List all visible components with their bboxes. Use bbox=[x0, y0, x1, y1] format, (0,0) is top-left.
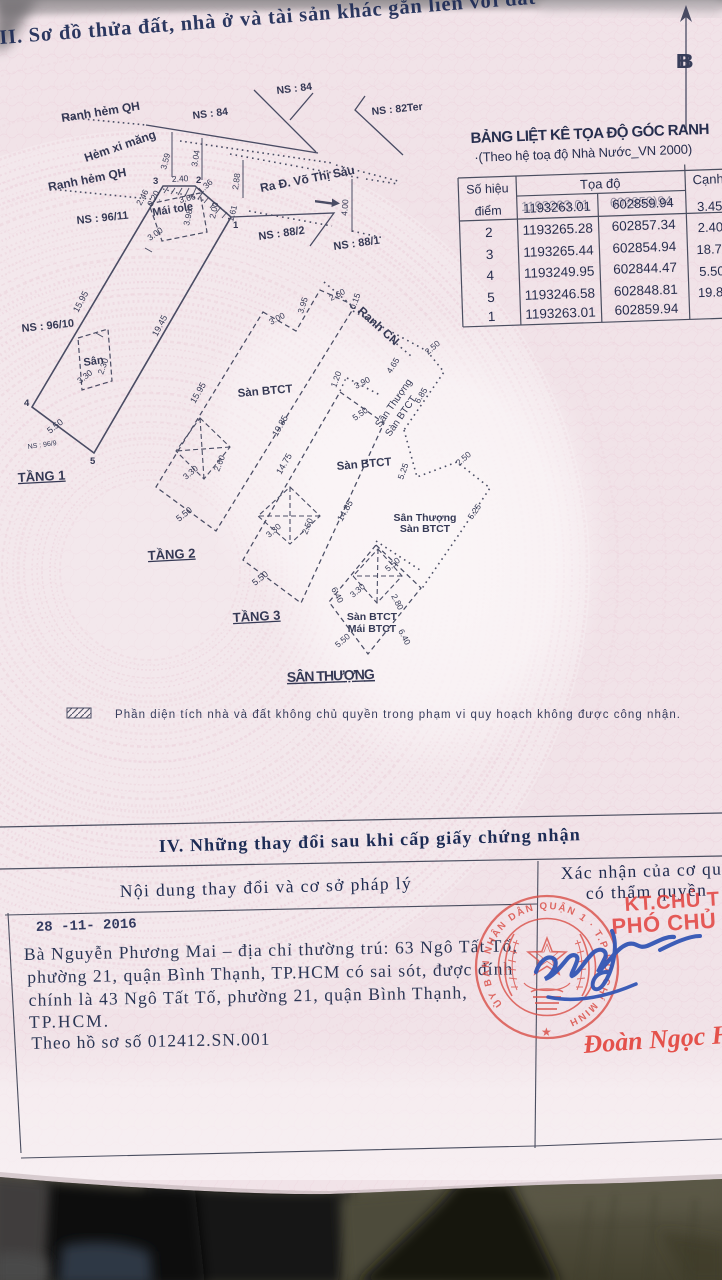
svg-text:602844.47: 602844.47 bbox=[613, 260, 677, 277]
svg-text:Mái BTCT: Mái BTCT bbox=[348, 623, 397, 635]
svg-text:1: 1 bbox=[488, 309, 496, 324]
svg-text:Cạnh: Cạnh bbox=[692, 171, 722, 187]
svg-text:5.50: 5.50 bbox=[699, 263, 722, 279]
svg-text:Tọa độ: Tọa độ bbox=[580, 176, 621, 192]
svg-text:TẦNG 2: TẦNG 2 bbox=[147, 546, 195, 563]
svg-text:1193263.01: 1193263.01 bbox=[521, 197, 589, 214]
svg-text:TẦNG 3: TẦNG 3 bbox=[232, 608, 280, 625]
svg-text:Sàn BTCT: Sàn BTCT bbox=[347, 611, 398, 623]
svg-text:5: 5 bbox=[487, 290, 495, 305]
svg-text:TẦNG 1: TẦNG 1 bbox=[17, 468, 65, 485]
svg-text:602854.94: 602854.94 bbox=[612, 239, 677, 256]
svg-text:2.40: 2.40 bbox=[172, 173, 189, 184]
svg-text:1: 1 bbox=[233, 220, 239, 231]
svg-text:1193246.58: 1193246.58 bbox=[525, 286, 596, 303]
svg-text:18.70: 18.70 bbox=[696, 241, 722, 257]
svg-text:602857.34: 602857.34 bbox=[612, 217, 677, 234]
svg-text:1193265.44: 1193265.44 bbox=[523, 243, 594, 260]
svg-text:★: ★ bbox=[541, 1025, 552, 1039]
svg-text:3: 3 bbox=[486, 247, 494, 262]
svg-text:1193265.28: 1193265.28 bbox=[522, 221, 593, 238]
svg-text:điểm: điểm bbox=[474, 204, 502, 219]
svg-text:Theo hồ sơ số 012412.SN.001: Theo hồ sơ số 012412.SN.001 bbox=[31, 1029, 269, 1053]
svg-text:1193249.95: 1193249.95 bbox=[524, 264, 595, 281]
svg-text:1193263.01: 1193263.01 bbox=[525, 305, 596, 322]
svg-text:602859.94: 602859.94 bbox=[614, 301, 679, 318]
svg-text:Sàn BTCT: Sàn BTCT bbox=[400, 523, 451, 535]
svg-text:Số hiệu: Số hiệu bbox=[466, 181, 509, 196]
svg-text:3: 3 bbox=[153, 176, 158, 187]
svg-text:4.00: 4.00 bbox=[339, 199, 350, 217]
svg-text:3.45: 3.45 bbox=[697, 198, 722, 214]
svg-text:602848.81: 602848.81 bbox=[614, 282, 678, 299]
svg-text:5: 5 bbox=[90, 456, 96, 467]
svg-text:2: 2 bbox=[485, 225, 493, 240]
svg-text:4: 4 bbox=[24, 398, 30, 409]
svg-text:602859)94: 602859)94 bbox=[610, 193, 673, 210]
svg-text:Phần diện tích nhà và đất khôn: Phần diện tích nhà và đất không chủ quyề… bbox=[115, 709, 680, 721]
svg-text:4: 4 bbox=[486, 268, 494, 283]
svg-text:B: B bbox=[679, 51, 693, 73]
svg-text:2.40: 2.40 bbox=[698, 219, 722, 235]
svg-text:SÂN THƯỢNG: SÂN THƯỢNG bbox=[287, 665, 376, 685]
svg-text:19.85: 19.85 bbox=[698, 284, 722, 300]
